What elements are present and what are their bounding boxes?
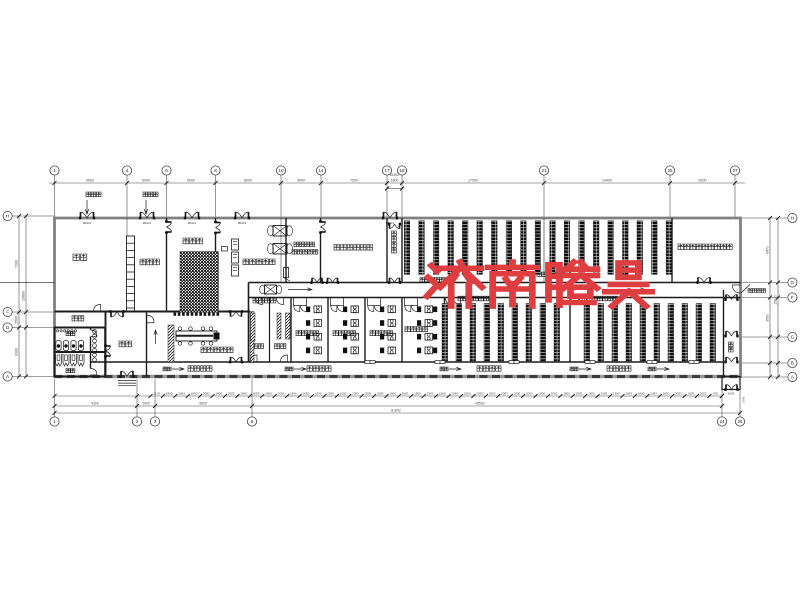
- svg-text:1: 1: [53, 168, 56, 173]
- svg-text:4500: 4500: [297, 178, 305, 182]
- svg-text:24: 24: [719, 419, 725, 424]
- svg-text:2083: 2083: [700, 391, 707, 395]
- svg-text:2083: 2083: [675, 391, 682, 395]
- svg-text:3: 3: [154, 419, 157, 424]
- svg-text:81852: 81852: [390, 173, 400, 177]
- svg-text:1800: 1800: [265, 391, 272, 395]
- svg-text:2083: 2083: [203, 391, 210, 395]
- svg-text:2083: 2083: [526, 391, 533, 395]
- svg-text:15800: 15800: [22, 291, 26, 301]
- svg-text:14: 14: [318, 168, 324, 173]
- svg-text:2: 2: [136, 419, 139, 424]
- svg-text:9600: 9600: [86, 178, 94, 182]
- svg-text:48592: 48592: [475, 401, 485, 405]
- svg-text:18: 18: [399, 168, 405, 173]
- svg-text:2083: 2083: [352, 391, 359, 395]
- svg-text:1800: 1800: [414, 391, 421, 395]
- svg-text:5600: 5600: [199, 401, 207, 405]
- svg-text:7200: 7200: [15, 260, 19, 268]
- svg-text:2103: 2103: [153, 391, 160, 395]
- svg-text:1800: 1800: [538, 391, 545, 395]
- svg-text:1800: 1800: [489, 391, 496, 395]
- svg-text:1800: 1800: [340, 391, 347, 395]
- svg-text:2083: 2083: [228, 391, 235, 395]
- svg-text:4300: 4300: [91, 401, 99, 405]
- svg-text:1800: 1800: [588, 391, 595, 395]
- svg-text:1800: 1800: [389, 391, 396, 395]
- svg-text:3950: 3950: [766, 314, 770, 322]
- svg-text:14400: 14400: [602, 178, 612, 182]
- svg-text:2083: 2083: [650, 391, 657, 395]
- svg-text:1800: 1800: [464, 391, 471, 395]
- svg-text:1800: 1800: [365, 391, 372, 395]
- svg-text:2083: 2083: [451, 391, 458, 395]
- svg-text:1800: 1800: [290, 391, 297, 395]
- svg-text:2083: 2083: [576, 391, 583, 395]
- svg-text:4: 4: [126, 168, 129, 173]
- svg-text:1800: 1800: [240, 391, 247, 395]
- svg-text:2083: 2083: [377, 391, 384, 395]
- svg-text:6000: 6000: [187, 178, 195, 182]
- svg-text:2083: 2083: [551, 391, 558, 395]
- svg-text:1800: 1800: [191, 391, 198, 395]
- svg-text:F: F: [791, 295, 794, 300]
- svg-text:1660: 1660: [742, 396, 746, 403]
- svg-text:15800: 15800: [774, 295, 778, 305]
- svg-text:1800: 1800: [391, 178, 399, 182]
- svg-text:7500: 7500: [350, 178, 358, 182]
- svg-text:1800: 1800: [514, 391, 521, 395]
- svg-text:17050: 17050: [468, 178, 478, 182]
- svg-text:10: 10: [278, 168, 284, 173]
- svg-text:1800: 1800: [687, 391, 694, 395]
- svg-text:H: H: [791, 216, 794, 221]
- svg-text:2083: 2083: [427, 391, 434, 395]
- svg-text:2083: 2083: [501, 391, 508, 395]
- svg-text:8300: 8300: [699, 178, 707, 182]
- svg-text:1800: 1800: [613, 391, 620, 395]
- svg-text:M1021: M1021: [188, 221, 197, 225]
- svg-text:2083: 2083: [327, 391, 334, 395]
- svg-text:G: G: [791, 280, 795, 285]
- svg-text:27: 27: [732, 168, 738, 173]
- svg-text:B: B: [791, 361, 794, 366]
- svg-text:H: H: [6, 214, 9, 219]
- svg-text:2000: 2000: [142, 401, 150, 405]
- svg-text:1500: 1500: [15, 316, 19, 324]
- svg-text:8: 8: [214, 168, 217, 173]
- svg-text:81852: 81852: [391, 408, 401, 412]
- svg-text:2083: 2083: [600, 391, 607, 395]
- svg-text:6: 6: [165, 168, 168, 173]
- svg-text:2083: 2083: [402, 391, 409, 395]
- svg-text:25: 25: [737, 419, 743, 424]
- svg-text:6470: 6470: [766, 246, 770, 254]
- svg-text:5: 5: [251, 419, 254, 424]
- svg-text:1800: 1800: [638, 391, 645, 395]
- svg-text:1800: 1800: [563, 391, 570, 395]
- svg-text:8000: 8000: [244, 178, 252, 182]
- svg-text:6300: 6300: [15, 348, 19, 356]
- svg-text:M1021: M1021: [83, 221, 92, 225]
- svg-text:1800: 1800: [166, 391, 173, 395]
- svg-text:21: 21: [541, 168, 547, 173]
- svg-text:2083: 2083: [302, 391, 309, 395]
- svg-text:2083: 2083: [625, 391, 632, 395]
- svg-text:M1021: M1021: [143, 221, 152, 225]
- svg-text:1: 1: [53, 419, 56, 424]
- svg-text:2083: 2083: [178, 391, 185, 395]
- svg-text:M1021: M1021: [238, 221, 247, 225]
- svg-text:1800: 1800: [663, 391, 670, 395]
- svg-text:F: F: [6, 310, 9, 315]
- svg-text:1800: 1800: [439, 391, 446, 395]
- svg-text:1800: 1800: [315, 391, 322, 395]
- svg-text:2083: 2083: [253, 391, 260, 395]
- svg-text:25: 25: [667, 168, 673, 173]
- svg-text:1800: 1800: [215, 391, 222, 395]
- svg-text:2083: 2083: [278, 391, 285, 395]
- svg-text:2083: 2083: [476, 391, 483, 395]
- svg-text:5000: 5000: [142, 178, 150, 182]
- svg-text:3063: 3063: [728, 391, 735, 395]
- svg-text:602: 602: [713, 391, 718, 395]
